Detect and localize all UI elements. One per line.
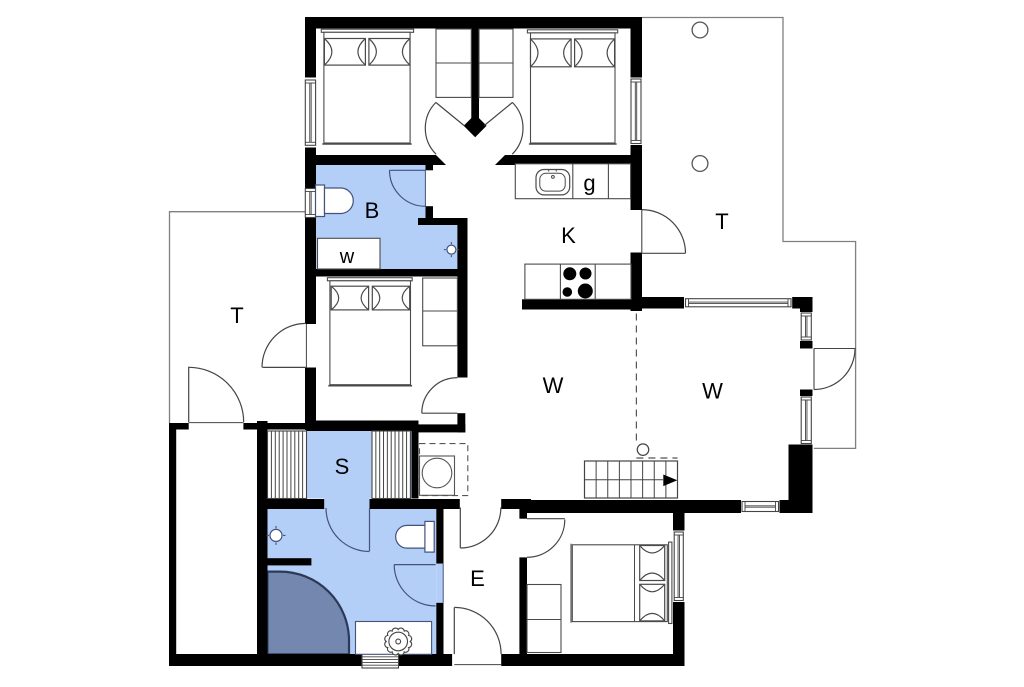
svg-text:T: T [230, 303, 243, 328]
svg-text:K: K [561, 223, 576, 248]
svg-text:S: S [335, 454, 350, 479]
svg-text:W: W [543, 373, 564, 398]
svg-text:B: B [365, 198, 380, 223]
svg-text:w: w [339, 246, 355, 268]
svg-text:E: E [470, 566, 485, 591]
svg-text:T: T [715, 209, 728, 234]
svg-text:g: g [583, 171, 595, 196]
svg-text:W: W [702, 379, 723, 404]
